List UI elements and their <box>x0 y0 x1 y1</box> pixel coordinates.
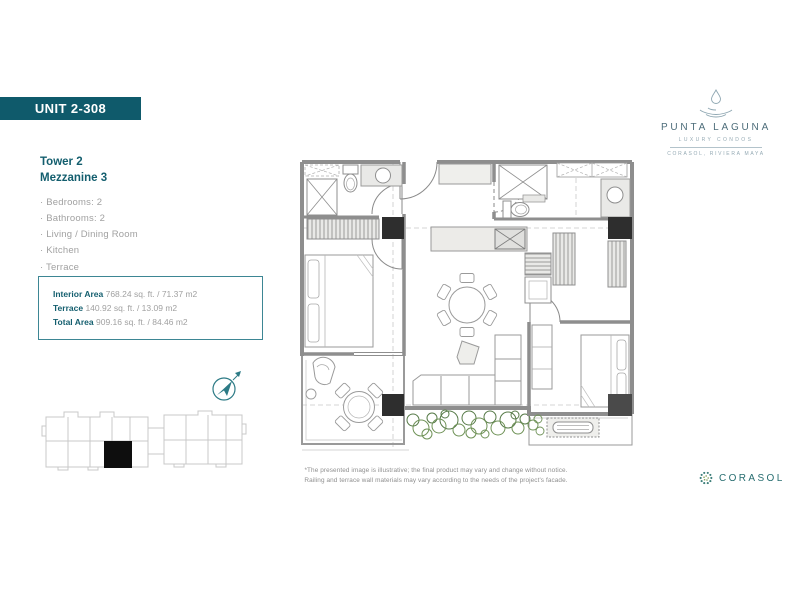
interior-area-value: 768.24 sq. ft. / 71.37 m2 <box>103 289 197 299</box>
bedroom-1 <box>305 255 373 347</box>
unit-number-label: UNIT 2-308 <box>35 101 106 116</box>
bathroom-1 <box>305 165 402 215</box>
side-table-icon <box>306 389 316 399</box>
pantry-icon <box>553 233 575 285</box>
terrace-area-row: Terrace 140.92 sq. ft. / 13.09 m2 <box>53 301 256 315</box>
interior-area-row: Interior Area 768.24 sq. ft. / 71.37 m2 <box>53 287 256 301</box>
area-summary-box: Interior Area 768.24 sq. ft. / 71.37 m2 … <box>38 276 263 340</box>
disclaimer-line-1: *The presented image is illustrative; th… <box>290 466 582 476</box>
planter-plants <box>407 410 544 439</box>
disclaimer: *The presented image is illustrative; th… <box>290 466 582 487</box>
feature-kitchen: Kitchen <box>40 243 138 259</box>
total-area-value: 909.16 sq. ft. / 84.46 m2 <box>94 317 188 327</box>
brand-divider <box>670 147 762 148</box>
toilet-1-icon <box>343 165 358 174</box>
compass-icon <box>202 362 248 408</box>
brand-logo: PUNTA LAGUNA LUXURY CONDOS CORASOL, RIVI… <box>648 88 784 157</box>
feature-bedrooms: Bedrooms: 2 <box>40 195 138 211</box>
brand-location: CORASOL, RIVIERA MAYA <box>648 151 784 157</box>
level-label: Mezzanine 3 <box>40 171 138 187</box>
brand-tagline: LUXURY CONDOS <box>648 137 784 143</box>
terrace-area-label: Terrace <box>53 303 83 313</box>
brand-name: PUNTA LAGUNA <box>648 122 784 133</box>
building-keyplan <box>38 404 250 478</box>
total-area-row: Total Area 909.16 sq. ft. / 84.46 m2 <box>53 315 256 329</box>
wardrobe-1 <box>307 219 379 239</box>
floor-plan <box>299 157 637 455</box>
entry-closet <box>439 164 491 184</box>
corasol-sun-icon <box>698 470 714 486</box>
highlighted-unit <box>104 441 132 468</box>
wardrobe-2 <box>532 325 552 389</box>
microwave-icon <box>525 253 551 275</box>
total-area-label: Total Area <box>53 317 94 327</box>
footer-brand-name: CORASOL <box>719 473 785 484</box>
feature-bathrooms: Bathrooms: 2 <box>40 211 138 227</box>
living-dining <box>413 164 527 405</box>
terrace-area-value: 140.92 sq. ft. / 13.09 m2 <box>83 303 177 313</box>
bathroom-2 <box>499 163 630 218</box>
unit-banner: UNIT 2-308 <box>0 97 141 120</box>
feature-terrace: Terrace <box>40 260 138 276</box>
toilet-2-icon <box>503 201 511 218</box>
footer-brand: CORASOL <box>698 470 785 486</box>
interior-area-label: Interior Area <box>53 289 103 299</box>
feature-list: Bedrooms: 2 Bathrooms: 2 Living / Dining… <box>40 195 138 276</box>
kitchen <box>525 233 626 303</box>
sink-2-icon <box>607 187 623 203</box>
feature-living-dining: Living / Dining Room <box>40 227 138 243</box>
terrace <box>306 357 383 431</box>
ac-unit-icon <box>547 418 599 437</box>
unit-info: Tower 2 Mezzanine 3 Bedrooms: 2 Bathroom… <box>40 155 138 276</box>
dining-table-icon <box>449 287 485 323</box>
sink-1-icon <box>376 168 391 183</box>
accent-chair-icon <box>457 341 479 364</box>
lounge-chair-icon <box>313 357 335 384</box>
tower-label: Tower 2 <box>40 155 138 171</box>
fridge-icon <box>608 241 626 287</box>
disclaimer-line-2: Railing and terrace wall materials may v… <box>290 476 582 486</box>
water-drop-icon <box>648 88 784 120</box>
